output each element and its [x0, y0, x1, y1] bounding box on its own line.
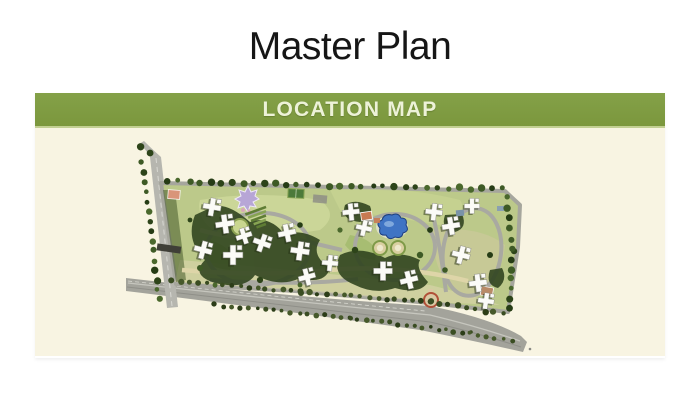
tree: [387, 319, 392, 324]
tree: [147, 150, 154, 157]
tree: [272, 180, 279, 187]
tree: [211, 301, 216, 306]
location-map-header: LOCATION MAP: [35, 93, 665, 128]
tree: [297, 222, 303, 228]
tree: [142, 179, 148, 185]
tree: [220, 283, 225, 288]
tree: [357, 294, 361, 298]
tree: [487, 252, 493, 258]
tree: [178, 279, 184, 285]
tree: [500, 185, 505, 190]
tree: [298, 283, 303, 288]
tree: [157, 296, 163, 302]
tree: [417, 252, 423, 258]
tree: [324, 292, 330, 298]
tree: [314, 313, 320, 319]
tree: [154, 277, 161, 284]
tree: [187, 280, 192, 285]
tree: [283, 182, 289, 188]
tree: [315, 292, 319, 296]
tree: [305, 312, 310, 317]
tree: [420, 326, 425, 331]
tree: [208, 179, 215, 186]
tree: [380, 184, 385, 189]
tree: [371, 184, 376, 189]
tree: [141, 169, 148, 176]
tree: [229, 283, 234, 288]
tree: [510, 339, 515, 344]
tree: [444, 327, 448, 331]
tree: [502, 337, 506, 341]
tree: [145, 200, 150, 205]
tree: [331, 314, 336, 319]
tree: [304, 182, 310, 188]
tree: [287, 310, 292, 315]
tree: [164, 178, 171, 185]
tree: [427, 227, 433, 233]
tree: [239, 284, 243, 288]
tree: [272, 308, 276, 312]
tree: [262, 286, 267, 291]
tree: [413, 324, 417, 328]
tree: [501, 311, 505, 315]
tree: [358, 184, 364, 190]
tree: [271, 288, 275, 292]
tree: [195, 280, 201, 286]
tree: [364, 317, 370, 323]
tree: [137, 143, 144, 150]
tree: [205, 281, 209, 285]
location-map-panel: LOCATION MAP: [35, 93, 665, 358]
tree: [352, 247, 358, 253]
tree: [213, 283, 218, 288]
tree: [241, 180, 248, 187]
tree: [175, 178, 180, 183]
tree: [280, 309, 284, 313]
tree: [468, 186, 474, 192]
clubhouse: [360, 211, 372, 220]
tree: [237, 306, 242, 311]
tree: [229, 305, 234, 310]
tree: [367, 295, 372, 300]
tree: [468, 331, 472, 335]
tree: [506, 305, 513, 312]
tree: [418, 298, 424, 304]
tree: [464, 305, 469, 310]
tree: [148, 228, 154, 234]
tree: [298, 311, 302, 315]
tree: [155, 287, 160, 292]
tree: [509, 286, 514, 291]
tree: [377, 296, 382, 301]
tree: [508, 275, 514, 281]
tree: [492, 336, 497, 341]
tree: [298, 290, 304, 296]
tree: [289, 288, 294, 293]
tree: [450, 329, 456, 335]
tree: [456, 183, 463, 190]
tree: [442, 267, 448, 273]
tree: [150, 238, 156, 244]
tree: [505, 194, 510, 199]
tree: [508, 237, 514, 243]
tree: [437, 328, 441, 332]
tree: [229, 179, 236, 186]
tree: [490, 309, 496, 315]
page-title: Master Plan: [0, 22, 700, 72]
tree: [429, 325, 433, 329]
tree: [251, 181, 257, 187]
tree: [506, 296, 513, 303]
tree: [263, 307, 268, 312]
tree: [151, 267, 158, 274]
pool-highlight: [384, 221, 394, 227]
tree: [333, 292, 338, 297]
tree: [256, 307, 260, 311]
tree: [349, 293, 354, 298]
tree: [221, 305, 226, 310]
tree: [306, 289, 312, 295]
tree: [403, 184, 409, 190]
tree: [151, 247, 157, 253]
tree: [384, 297, 389, 302]
tree: [187, 179, 193, 185]
tree: [148, 219, 153, 224]
plaza: [313, 194, 328, 203]
tree: [435, 185, 440, 190]
tree: [336, 183, 343, 190]
tree: [196, 180, 202, 186]
tree: [152, 259, 158, 265]
tree: [390, 183, 397, 190]
tree: [410, 298, 415, 303]
tree: [281, 287, 287, 293]
tree: [339, 315, 344, 320]
tree: [379, 319, 384, 324]
tree: [503, 205, 510, 212]
tree: [188, 218, 193, 223]
gatehouse: [168, 190, 181, 200]
tree: [473, 307, 477, 311]
tree: [445, 302, 450, 307]
tree: [315, 182, 321, 188]
tree: [446, 186, 451, 191]
tree: [413, 184, 418, 189]
tree: [460, 331, 465, 336]
tree: [476, 333, 480, 337]
tree: [247, 285, 253, 291]
tree: [261, 180, 268, 187]
tree: [256, 286, 261, 291]
tree: [405, 323, 409, 327]
location-map-body: [35, 128, 665, 356]
tree: [371, 319, 375, 323]
tree: [478, 184, 485, 191]
tree: [337, 227, 342, 232]
roof-blue: [456, 210, 464, 217]
tree: [257, 277, 263, 283]
tree: [424, 185, 430, 191]
tree: [217, 180, 224, 187]
tree: [197, 265, 203, 271]
tree: [326, 183, 333, 190]
tree: [395, 322, 400, 327]
tree: [246, 306, 251, 311]
tree: [168, 277, 174, 283]
tree: [146, 208, 152, 214]
tree: [428, 298, 434, 304]
tree: [436, 301, 442, 307]
tree: [392, 296, 397, 301]
sports-court: [288, 189, 304, 199]
tree: [348, 316, 353, 321]
tree: [506, 214, 513, 221]
tree: [483, 309, 489, 315]
tree: [348, 183, 354, 189]
tree: [509, 246, 515, 252]
roof-blue: [497, 206, 504, 211]
tree: [508, 257, 515, 264]
location-map-illustration: [35, 128, 665, 356]
tree: [138, 159, 143, 164]
tree: [508, 266, 515, 273]
tree: [342, 293, 347, 298]
tree: [489, 185, 495, 191]
tree: [322, 312, 327, 317]
location-map-header-label: LOCATION MAP: [263, 98, 438, 122]
tree: [144, 189, 149, 194]
tree: [455, 302, 461, 308]
tree: [355, 318, 359, 322]
tree: [506, 225, 513, 232]
tree: [484, 334, 489, 339]
tree: [293, 182, 298, 187]
tree: [402, 298, 407, 303]
